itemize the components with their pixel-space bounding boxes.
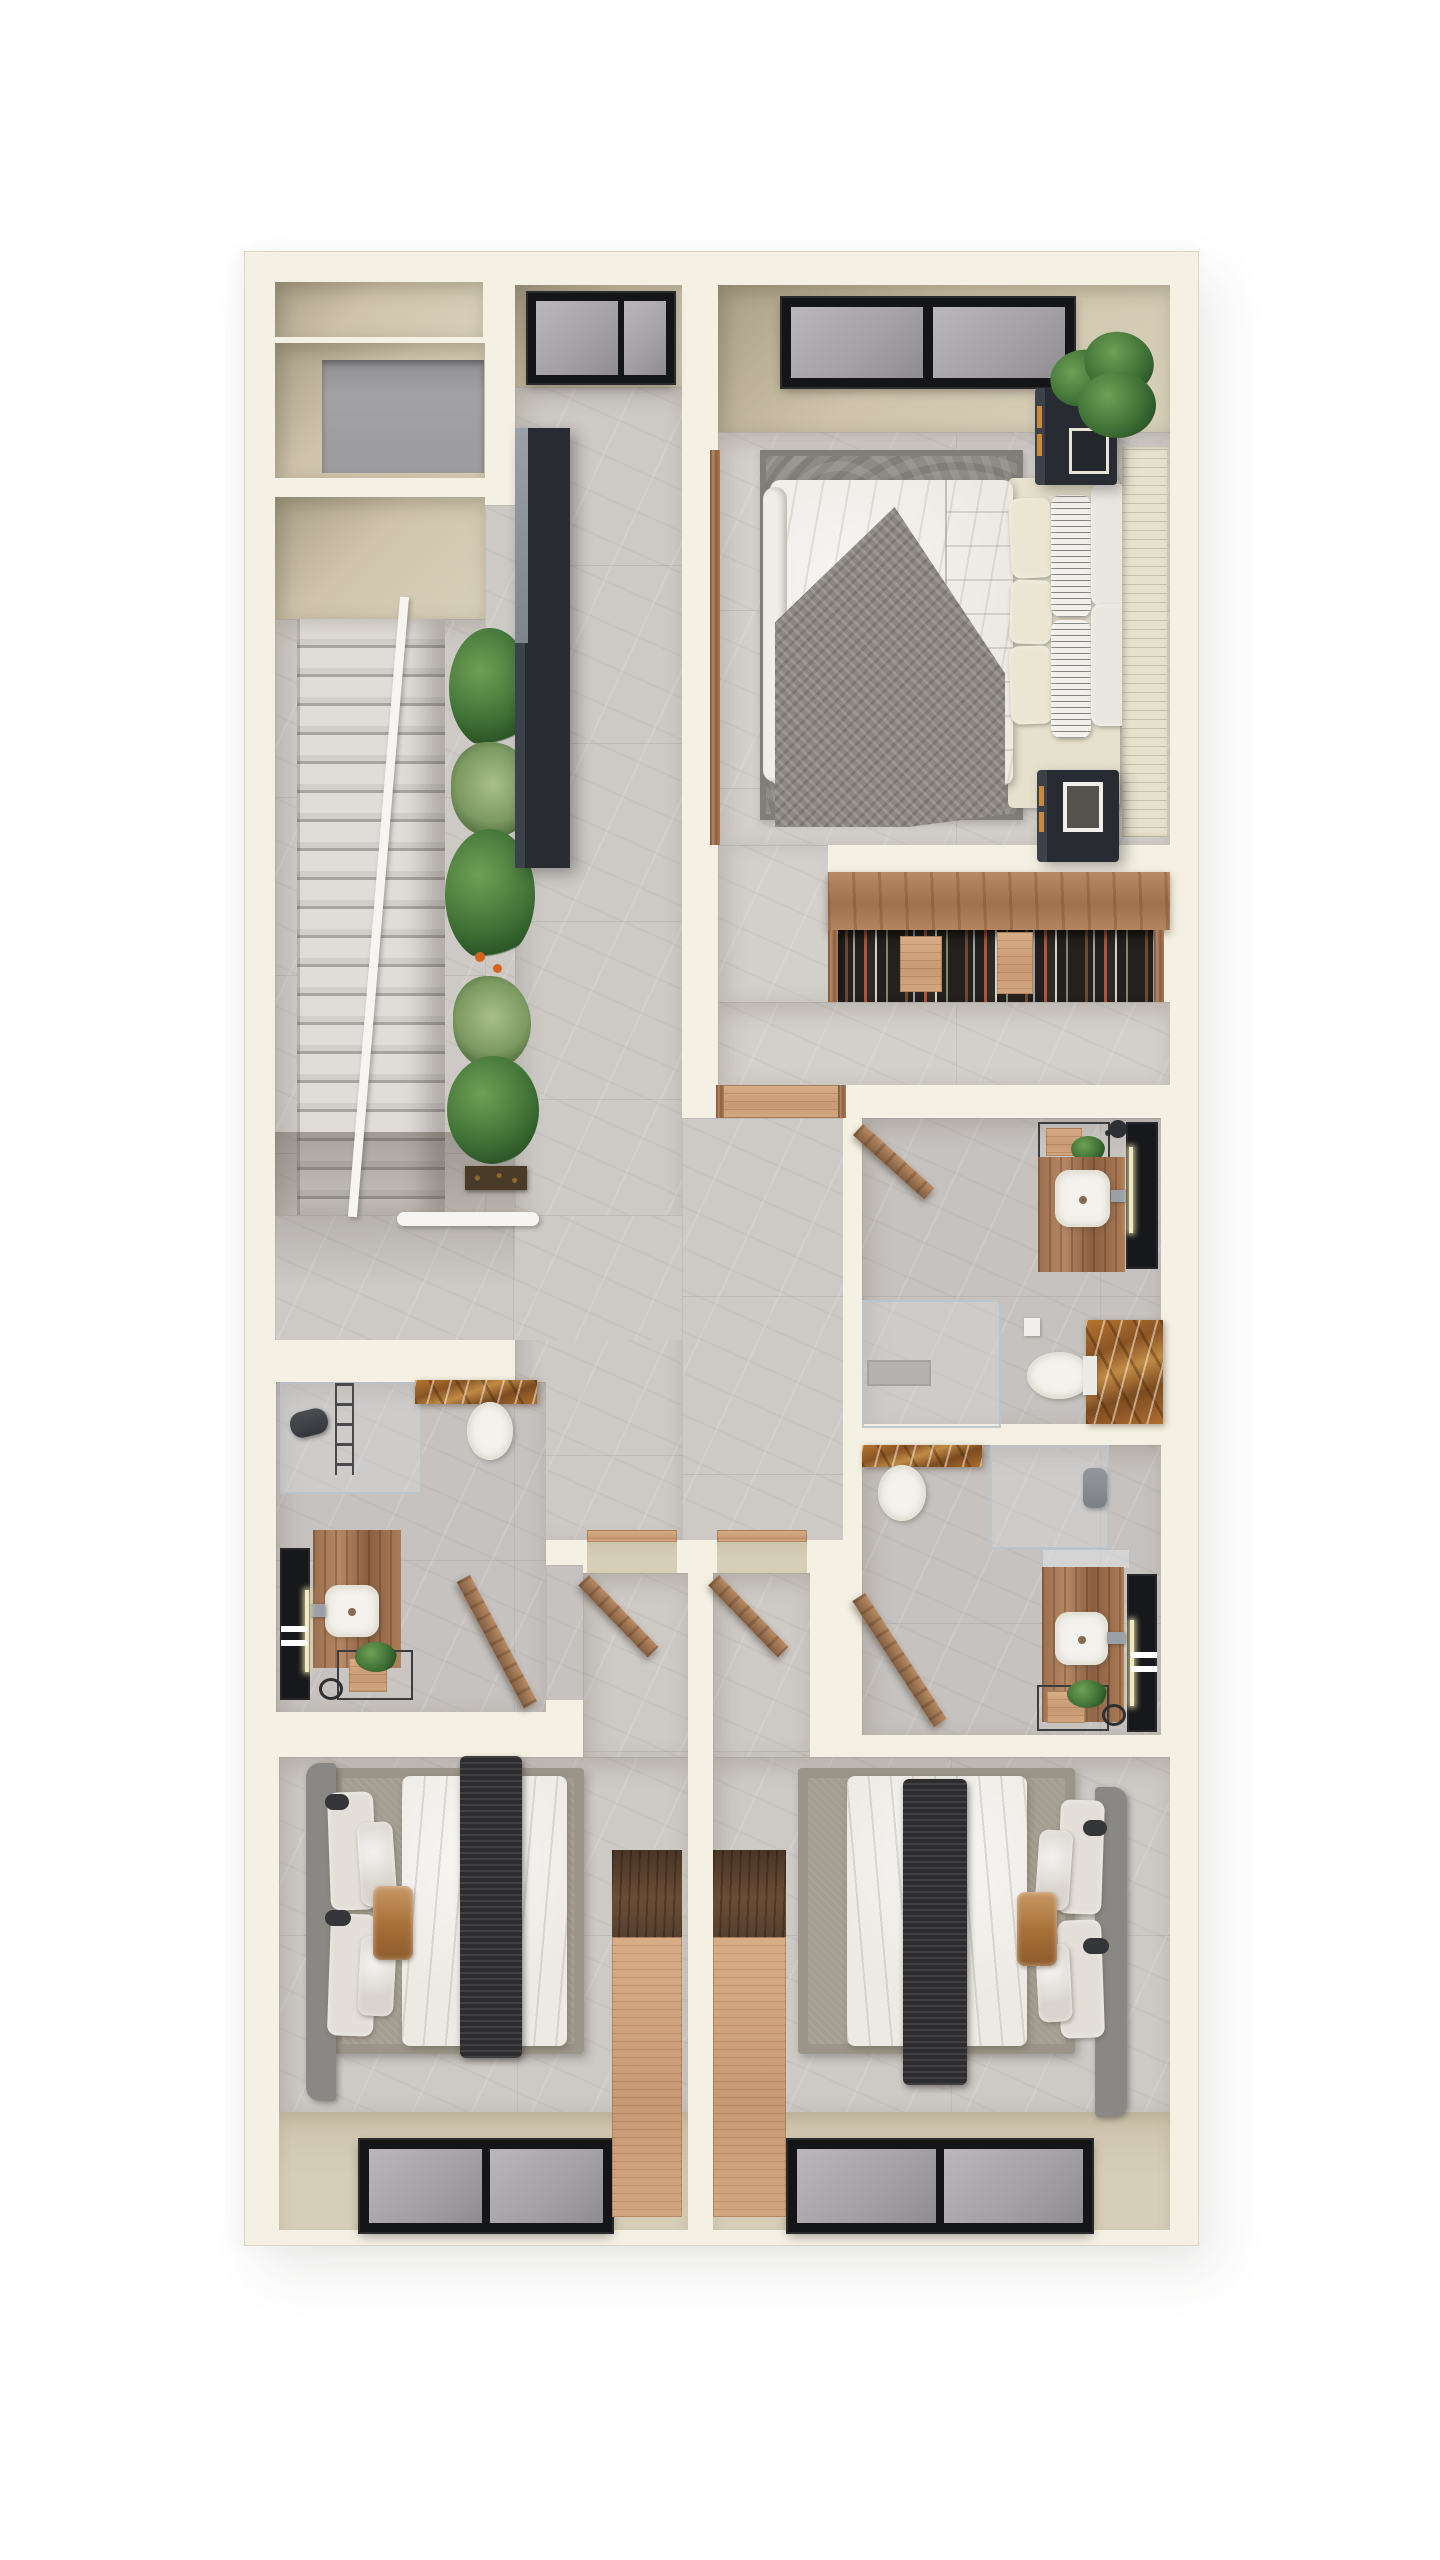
window-pane — [369, 2149, 482, 2223]
faucet — [1107, 1632, 1125, 1644]
mirror-led — [1130, 1620, 1134, 1706]
bedroom-right-doorway — [717, 1540, 807, 1573]
bedside-lamp — [1083, 1938, 1109, 1954]
closet-threshold — [722, 1085, 840, 1118]
shower-head-ceiling — [1109, 1120, 1127, 1138]
bookshelf-wood-top — [828, 872, 1170, 930]
hall-black-wardrobe — [515, 428, 570, 868]
shower-head-middle — [1083, 1468, 1107, 1508]
window-pane — [944, 2149, 1083, 2223]
nightstand-handle — [1037, 406, 1042, 428]
master-window — [782, 298, 1074, 387]
marble-wall-ensuite — [1086, 1320, 1163, 1424]
nightstand-handle — [1037, 434, 1042, 456]
plant-bush — [447, 1056, 539, 1164]
master-door-jamb-trim — [710, 450, 720, 845]
plant-sprig — [1067, 1680, 1107, 1708]
window-pane — [933, 307, 1065, 378]
mirror-led — [1129, 1147, 1133, 1233]
pillow-striped — [1051, 620, 1091, 738]
nightstand-bottom — [1037, 770, 1119, 862]
gray-floor-mat — [322, 360, 484, 473]
hall-widening-floor — [682, 1118, 843, 1540]
stairwell-upper-wall — [275, 497, 485, 619]
closet-floor — [718, 1002, 1170, 1085]
toilet-ensuite — [1027, 1352, 1091, 1399]
floor-plan — [245, 252, 1198, 2245]
basin-drain — [1079, 1196, 1087, 1204]
nightstand-handle — [1039, 812, 1044, 832]
pillow-striped — [1051, 495, 1091, 617]
bedroom-left-window — [360, 2140, 612, 2232]
toilet-left — [467, 1402, 513, 1460]
pillow-brown — [1017, 1892, 1057, 1966]
window-pane — [624, 301, 666, 375]
floor-plan-canvas — [0, 0, 1440, 2560]
landing-window — [528, 293, 674, 383]
pillow-brown — [373, 1886, 413, 1960]
potted-plant-master — [1050, 332, 1160, 442]
bookshelf-side — [1154, 930, 1164, 1002]
bookshelf-divider-box — [997, 932, 1033, 994]
toilet-tank — [1083, 1356, 1097, 1395]
closet-connector-floor — [718, 845, 828, 1002]
wardrobe-right-top — [713, 1850, 786, 1937]
vanity-basin-ensuite — [1055, 1170, 1110, 1227]
threshold-jamb — [838, 1085, 846, 1118]
basin-drain — [1078, 1636, 1086, 1644]
staircase-steps — [297, 619, 445, 1215]
flower-orange — [493, 964, 502, 973]
vanity-basin-middle — [1055, 1612, 1108, 1665]
basin-drain — [348, 1608, 356, 1616]
pillow-cream — [1008, 497, 1054, 579]
nightstand-handle — [1039, 786, 1044, 806]
plant-leaf — [1078, 372, 1156, 438]
planter-box — [465, 1166, 527, 1190]
threshold-left — [587, 1530, 677, 1542]
marble-strip-middle — [862, 1445, 982, 1467]
bedside-lamp — [325, 1794, 349, 1810]
book-on-nightstand — [1063, 782, 1103, 832]
bed-left-runner — [460, 1756, 522, 2058]
vanity-glass-shelf — [1042, 1549, 1130, 1569]
threshold-jamb — [716, 1085, 724, 1118]
wardrobe-right-front — [713, 1937, 786, 2217]
window-pane — [791, 307, 923, 378]
flower-orange — [475, 952, 485, 962]
bed-right-runner — [903, 1779, 967, 2085]
master-headboard-slats — [1122, 447, 1167, 837]
bedroom-left-doorway — [587, 1540, 677, 1573]
wardrobe-left-top — [612, 1850, 682, 1937]
towel-bar-brackets — [281, 1626, 307, 1632]
window-pane — [536, 301, 618, 375]
marble-strip-left — [415, 1380, 537, 1404]
wardrobe-top-face — [515, 428, 528, 643]
bookshelf-divider-box — [900, 936, 942, 992]
bedside-lamp — [325, 1910, 351, 1926]
toilet-roll-holder — [1024, 1318, 1040, 1336]
bookshelf-side — [828, 930, 838, 1002]
pillow-cream — [1009, 579, 1053, 644]
stool-left — [319, 1678, 343, 1700]
stool-middle — [1102, 1704, 1126, 1726]
window-pane — [797, 2149, 936, 2223]
plant-sprig — [355, 1642, 397, 1672]
storage-niche-floor — [275, 282, 483, 337]
ladder-towel-rack — [335, 1383, 354, 1475]
towel-bar-brackets — [1131, 1652, 1157, 1658]
threshold-right — [717, 1530, 807, 1542]
wardrobe-left-front — [612, 1937, 682, 2217]
bedside-lamp — [1083, 1820, 1107, 1836]
window-pane — [490, 2149, 603, 2223]
toilet-middle — [878, 1465, 926, 1521]
lower-hall-floor — [275, 1215, 682, 1340]
bedroom-right-window — [788, 2140, 1092, 2232]
shower-mat — [867, 1360, 931, 1386]
pillow-cream — [1009, 645, 1054, 724]
vanity-basin-left — [325, 1585, 379, 1637]
plant-agave — [453, 976, 531, 1068]
